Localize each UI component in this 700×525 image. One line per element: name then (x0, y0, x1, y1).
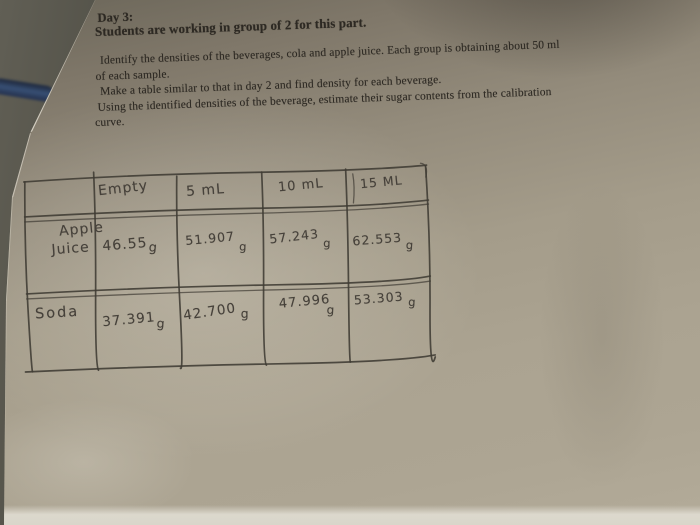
unit-grams: g (239, 239, 248, 253)
handwritten-table: Empty 5 mL 10 mL 15 ML Apple Juice Soda … (13, 157, 442, 379)
table-line-left (24, 182, 33, 372)
body-line-2: of each sample. (95, 68, 169, 83)
cell-value: 46.55 (102, 235, 148, 254)
unit-grams: g (156, 315, 166, 331)
row-label-juice: Juice (51, 239, 90, 258)
table-line-v1 (92, 172, 99, 370)
table-line-v4-double (353, 174, 355, 203)
table-line-v3 (260, 172, 267, 365)
cell-apple-empty: 46.55g (102, 234, 157, 254)
unit-grams: g (148, 240, 159, 256)
worksheet-paper: Day 3: Students are working in group of … (0, 0, 700, 525)
heading-instruction: Students are working in group of 2 for t… (95, 15, 367, 40)
unit-grams: g (408, 295, 417, 309)
unit-grams: g (323, 236, 332, 250)
unit-grams: g (241, 306, 250, 321)
unit-grams: g (326, 303, 335, 317)
col-header-5ml: 5 mL (186, 181, 226, 200)
body-line-1: Identify the densities of the beverages,… (100, 39, 560, 67)
table-line-v2 (176, 176, 182, 368)
table-line-right (426, 166, 436, 362)
unit-grams: g (405, 238, 414, 252)
worksheet-photo: Day 3: Students are working in group of … (0, 0, 700, 525)
row-label-soda: Soda (35, 304, 80, 323)
body-line-5: curve. (95, 116, 125, 129)
table-line-bottom (25, 355, 435, 372)
table-grid-lines (13, 157, 442, 379)
table-line-v4 (345, 169, 351, 362)
